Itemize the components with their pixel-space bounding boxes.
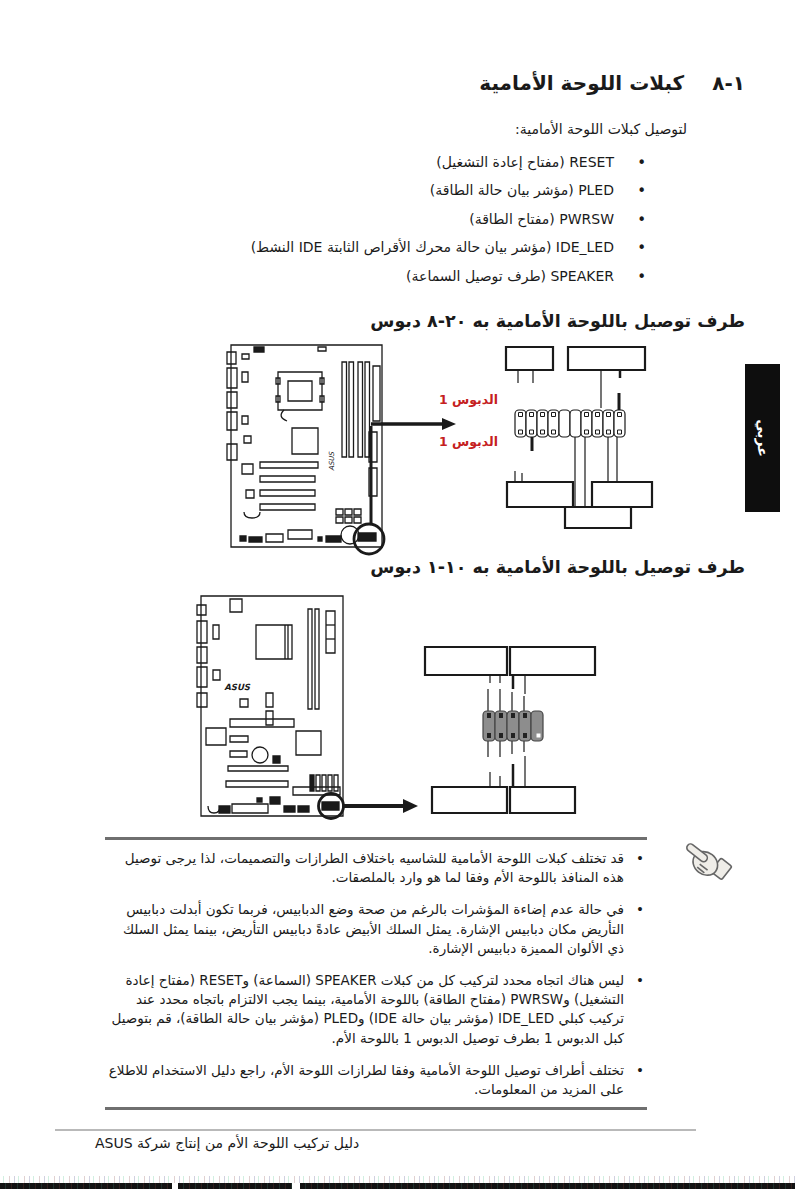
page-title: كبلات اللوحة الأمامية bbox=[479, 71, 684, 95]
connector-diagram-1 bbox=[505, 343, 665, 533]
list-item: SPEAKER (طرف توصيل السماعة) bbox=[251, 268, 646, 296]
intro-line: لتوصيل كبلات اللوحة الأمامية: bbox=[515, 121, 687, 137]
cable-list: RESET (مفتاح إعادة التشغيل) PLED (مؤشر ب… bbox=[251, 154, 646, 296]
language-side-tab: عربي bbox=[745, 364, 780, 512]
notes-list: قد تختلف كبلات اللوحة الأمامية للشاسيه ب… bbox=[105, 849, 650, 1112]
board1-asus-logo: ASUS bbox=[328, 451, 336, 470]
note-item: تختلف أطراف توصيل اللوحة الأمامية وفقا ل… bbox=[105, 1061, 650, 1099]
scan-edge-strip bbox=[178, 1183, 292, 1189]
note-hand-icon bbox=[678, 845, 734, 897]
board2-asus-logo: ASUS bbox=[224, 682, 251, 692]
motherboard-diagram-1: ASUS bbox=[230, 344, 458, 554]
scan-edge-strip bbox=[0, 1183, 172, 1189]
list-item: PWRSW (مفتاح الطاقة) bbox=[251, 211, 646, 239]
footer-text: دليل تركيب اللوحة الأم من إنتاج شركة ASU… bbox=[95, 1135, 359, 1151]
notes-top-divider bbox=[105, 837, 647, 840]
footer-divider bbox=[55, 1129, 696, 1131]
language-tab-label: عربي bbox=[754, 419, 770, 457]
list-item: IDE_LED (مؤشر بيان حالة محرك الأقراص الث… bbox=[251, 239, 646, 267]
scan-noise-band bbox=[0, 1176, 795, 1183]
scan-edge-strip bbox=[300, 1183, 795, 1189]
list-item: RESET (مفتاح إعادة التشغيل) bbox=[251, 154, 646, 182]
manual-page: ١-٨ كبلات اللوحة الأمامية لتوصيل كبلات ا… bbox=[0, 0, 795, 1197]
note-item: قد تختلف كبلات اللوحة الأمامية للشاسيه ب… bbox=[105, 849, 650, 887]
connector-diagram-2 bbox=[420, 644, 600, 816]
pin1-label-bottom: الدبوس 1 bbox=[439, 434, 498, 449]
note-item: ليس هناك اتجاه محدد لتركيب كل من كبلات S… bbox=[105, 971, 650, 1048]
motherboard-diagram-2: ASUS bbox=[200, 595, 425, 821]
pin1-label-top: الدبوس 1 bbox=[439, 392, 498, 407]
figure1-heading: طرف توصيل باللوحة الأمامية به ٢٠-٨ دبوس bbox=[370, 311, 745, 331]
section-title: ١-٨ كبلات اللوحة الأمامية bbox=[479, 71, 745, 95]
section-number: ١-٨ bbox=[712, 71, 745, 95]
list-item: PLED (مؤشر بيان حالة الطاقة) bbox=[251, 182, 646, 210]
figure2-heading: طرف توصيل باللوحة الأمامية به ١٠-١ دبوس bbox=[370, 557, 745, 577]
note-item: في حالة عدم إضاءة المؤشرات بالرغم من صحة… bbox=[105, 900, 650, 958]
